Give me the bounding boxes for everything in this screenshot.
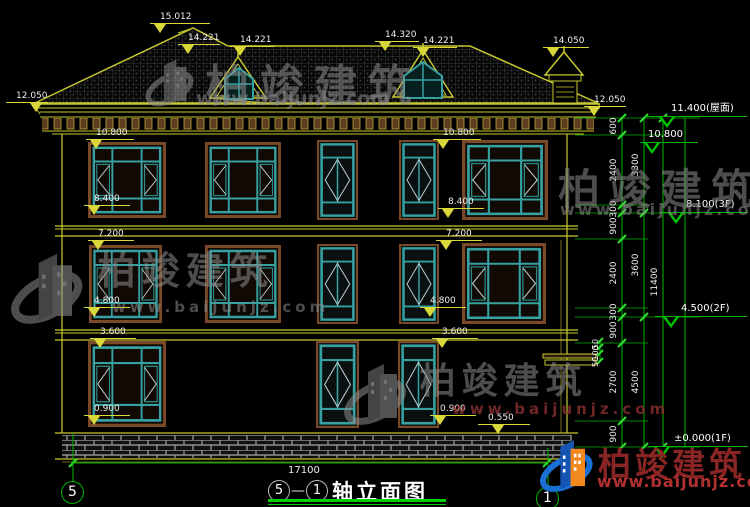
dim-value: 50 — [590, 340, 602, 384]
level-marker-roof: 11.400(屋面) — [645, 103, 747, 117]
dim-value: 2400 — [608, 251, 620, 295]
elevation-marker: 0.900 — [84, 404, 130, 416]
windows-2f — [90, 245, 544, 323]
elevation-value: 0.900 — [84, 404, 130, 415]
elevation-drawing-canvas: 15.012 14.221 14.221 14.320 14.221 14.05… — [0, 0, 750, 507]
elevation-triangle-icon — [30, 103, 42, 112]
elevation-marker: 14.221 — [230, 35, 274, 47]
level-triangle-icon — [668, 213, 684, 224]
side-canopy — [543, 354, 596, 365]
elevation-marker: 7.200 — [88, 229, 134, 241]
elevation-triangle-icon — [379, 42, 391, 51]
elevation-marker: 10.800 — [433, 128, 481, 140]
elevation-marker: 7.200 — [436, 229, 482, 241]
elevation-marker: 0.550 — [478, 413, 530, 425]
elevation-marker: 8.400 — [84, 194, 130, 206]
elevation-triangle-icon — [437, 140, 449, 149]
elevation-marker: 3.600 — [432, 327, 478, 339]
elevation-value: 14.050 — [543, 36, 589, 47]
elevation-value: 3.600 — [90, 327, 136, 338]
total-width-dim: 17100 — [288, 465, 320, 476]
dim-value: 600 — [608, 104, 620, 148]
elevation-value: 8.400 — [438, 197, 484, 208]
level-triangle-icon — [644, 143, 660, 154]
elevation-triangle-icon — [88, 416, 100, 425]
elevation-triangle-icon — [154, 24, 166, 33]
axis-bubble-5: 5 — [61, 481, 84, 504]
elevation-value: 10.800 — [86, 128, 134, 139]
elevation-triangle-icon — [436, 339, 448, 348]
elevation-value: 12.050 — [6, 91, 48, 102]
level-value: 8.100(3F) — [660, 199, 748, 212]
elevation-value: 3.600 — [432, 327, 478, 338]
brand-block — [538, 430, 598, 498]
title-underline — [268, 499, 446, 502]
elevation-triangle-icon — [417, 48, 429, 57]
elevation-triangle-icon — [234, 47, 246, 56]
elevation-triangle-icon — [440, 241, 452, 250]
elevation-marker: 10.800 — [86, 128, 134, 140]
dim-value: 4500 — [630, 360, 642, 404]
elevation-value: 0.900 — [430, 404, 476, 415]
elevation-marker: 3.600 — [90, 327, 136, 339]
elevation-marker: 15.012 — [150, 12, 210, 24]
elevation-triangle-icon — [90, 140, 102, 149]
elevation-triangle-icon — [442, 209, 454, 218]
elevation-marker: 4.800 — [84, 296, 130, 308]
elevation-triangle-icon — [88, 206, 100, 215]
elevation-triangle-icon — [434, 416, 446, 425]
level-value: 10.800 — [640, 129, 698, 142]
elevation-value: 14.221 — [230, 35, 274, 46]
elevation-triangle-icon — [588, 107, 600, 116]
elevation-value: 4.800 — [420, 296, 466, 307]
elevation-marker: 0.900 — [430, 404, 476, 416]
elevation-marker: 12.050 — [6, 91, 48, 103]
elevation-value: 0.550 — [478, 413, 530, 424]
dim-value: 2400 — [608, 148, 620, 192]
elevation-triangle-icon — [88, 308, 100, 317]
elevation-marker: 14.221 — [413, 36, 457, 48]
dim-value: 3300 — [630, 143, 642, 187]
elevation-value: 4.800 — [84, 296, 130, 307]
elevation-value: 7.200 — [88, 229, 134, 240]
elevation-marker: 14.050 — [543, 36, 589, 48]
dim-value: 2700 — [608, 360, 620, 404]
elevation-value: 10.800 — [433, 128, 481, 139]
elevation-value: 14.221 — [178, 33, 220, 44]
elevation-triangle-icon — [492, 425, 504, 434]
level-marker-2f: 4.500(2F) — [655, 303, 747, 317]
elevation-triangle-icon — [547, 48, 559, 57]
dim-value: 11400 — [649, 260, 661, 304]
level-marker-3f: 8.100(3F) — [660, 199, 748, 213]
level-value: 4.500(2F) — [655, 303, 747, 316]
title-axis-separator: — — [291, 483, 305, 499]
level-triangle-icon — [663, 317, 679, 328]
elevation-value: 15.012 — [150, 12, 210, 23]
elevation-marker: 8.400 — [438, 197, 484, 209]
level-value: 11.400(屋面) — [645, 103, 747, 116]
title-underline-thin — [268, 504, 446, 505]
elevation-value: 8.400 — [84, 194, 130, 205]
elevation-triangle-icon — [94, 339, 106, 348]
brand-logo-color-icon — [538, 430, 598, 498]
elevation-marker: 4.800 — [420, 296, 466, 308]
windows-1f — [89, 342, 438, 427]
elevation-triangle-icon — [92, 241, 104, 250]
dim-value: 900 — [608, 204, 620, 248]
plinth — [55, 433, 578, 462]
dim-value: 900 — [608, 308, 620, 352]
elevation-value: 7.200 — [436, 229, 482, 240]
brand-url-text: www.baijunjz.com — [597, 472, 750, 491]
roof — [35, 28, 598, 103]
elevation-marker: 14.221 — [178, 33, 220, 45]
elevation-triangle-icon — [182, 45, 194, 54]
level-marker-10800: 10.800 — [640, 129, 698, 143]
elevation-value: 14.221 — [413, 36, 457, 47]
level-triangle-icon — [659, 117, 675, 128]
dim-value: 3600 — [630, 243, 642, 287]
elevation-triangle-icon — [424, 308, 436, 317]
